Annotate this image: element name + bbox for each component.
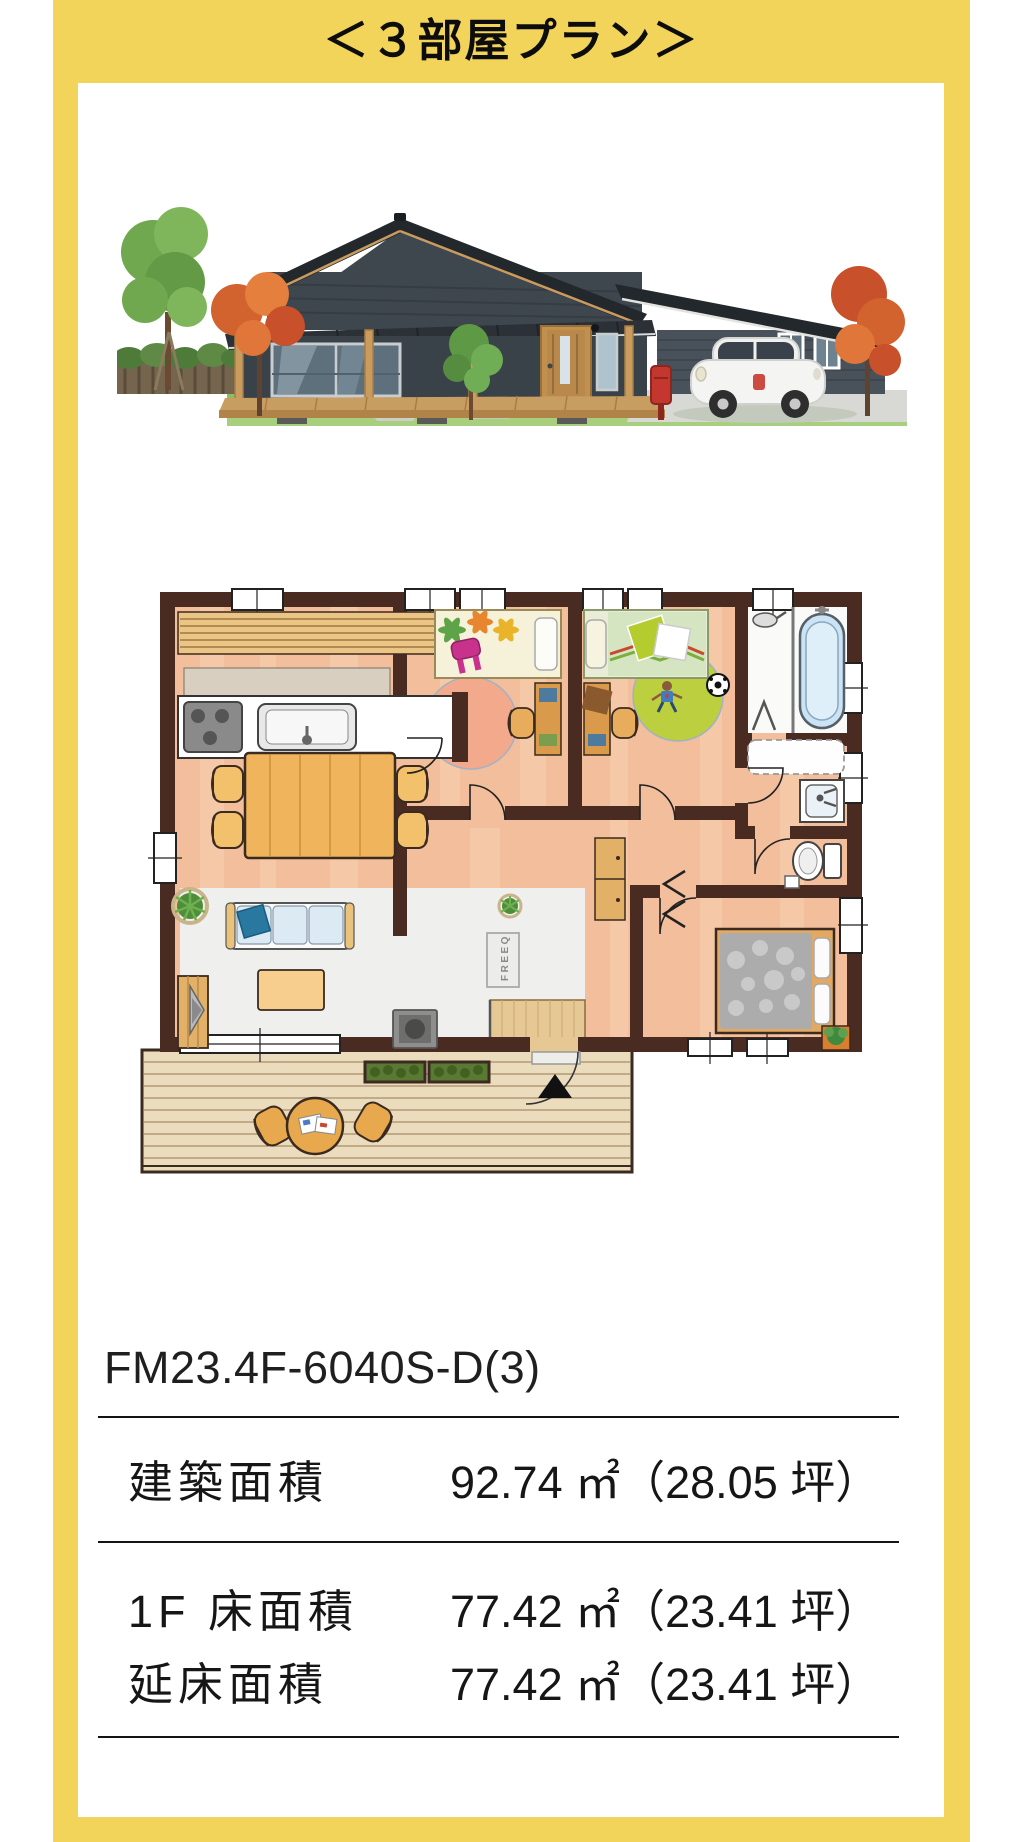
floor-plan-illustration: FREEQ <box>140 588 920 1188</box>
entrance-genkan <box>490 1000 585 1042</box>
spec-label: 延床面積 <box>128 1648 328 1713</box>
sliding-glass-window <box>272 344 400 396</box>
washbasin-icon <box>800 780 844 822</box>
counter-mat <box>184 668 390 696</box>
chair-1 <box>510 708 534 738</box>
house-exterior-rendering <box>117 122 907 434</box>
spec-value: 92.74 ㎡（28.05 坪） <box>450 1446 880 1511</box>
soccer-ball-icon <box>707 674 729 696</box>
toilet-icon <box>793 842 841 880</box>
stove-icon <box>184 702 242 752</box>
living-plant <box>173 889 207 923</box>
svg-text:FREEQ: FREEQ <box>500 934 511 981</box>
bathtub-icon <box>800 606 844 728</box>
spec-row-building-area: 建築面積 92.74 ㎡（28.05 坪） <box>98 1446 899 1504</box>
spec-label: 建築面積 <box>128 1446 328 1511</box>
divider-top <box>98 1416 899 1418</box>
entrance-door <box>541 324 617 400</box>
chair-2 <box>612 708 636 738</box>
model-code: FM23.4F-6040S-D(3) <box>104 1342 541 1394</box>
coffee-table <box>258 970 324 1010</box>
flyer-page: ＜３部屋プラン＞ <box>0 0 1024 1842</box>
dining-set <box>212 753 428 858</box>
spec-row-total-floor-area: 延床面積 77.42 ㎡（23.41 坪） <box>98 1648 899 1706</box>
spec-label: 1F 床面積 <box>128 1575 358 1640</box>
wood-stove <box>393 1010 437 1048</box>
divider-bottom <box>98 1736 899 1738</box>
spec-value: 77.42 ㎡（23.41 坪） <box>450 1575 880 1640</box>
freeq-mat: FREEQ <box>487 933 519 987</box>
spec-value: 77.42 ㎡（23.41 坪） <box>450 1648 880 1713</box>
sofa <box>226 903 354 949</box>
small-plant <box>499 895 521 917</box>
tv-board <box>178 976 208 1048</box>
sink-icon <box>258 704 356 750</box>
plan-title: ＜３部屋プラン＞ <box>53 0 970 83</box>
entrance-opening <box>530 1037 578 1052</box>
spec-row-1f-floor-area: 1F 床面積 77.42 ㎡（23.41 坪） <box>98 1575 899 1633</box>
laundry-mat <box>748 740 844 774</box>
bedroom-plant <box>822 1026 850 1050</box>
divider-middle <box>98 1541 899 1543</box>
